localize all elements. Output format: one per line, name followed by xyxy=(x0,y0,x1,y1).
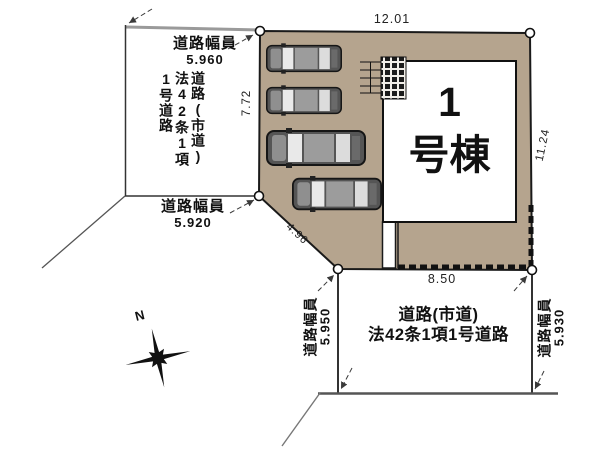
road-width-title: 道路幅員 xyxy=(135,199,251,215)
dimension-south-edge: 8.50 xyxy=(413,272,471,286)
building-1-label: 1 号棟 xyxy=(383,76,516,182)
road-width-value: 5.930 xyxy=(553,277,567,379)
car-icon xyxy=(267,85,341,115)
south-road-name-line1: 道路(市道) xyxy=(341,305,536,325)
road-width-label-south-east: 道路幅員 5.930 xyxy=(538,277,567,379)
site-plan-canvas xyxy=(0,0,600,450)
south-road-name-line2: 法42条1項1号道路 xyxy=(341,325,536,345)
dimension-north-edge: 12.01 xyxy=(360,12,424,26)
site-plan: 道路幅員 5.960 道路(市道) 法42条1項 1号道路 7.72 道路幅員 … xyxy=(0,0,600,450)
road-width-title: 道路幅員 xyxy=(147,36,263,52)
south-road-name: 道路(市道) 法42条1項1号道路 xyxy=(341,305,536,345)
road-width-label-northwest: 道路幅員 5.960 xyxy=(147,36,263,67)
road-width-label-south-west: 道路幅員 5.950 xyxy=(304,276,333,378)
car-icon xyxy=(293,176,381,212)
building-suffix: 号棟 xyxy=(383,129,516,182)
road-width-label-west: 道路幅員 5.920 xyxy=(135,199,251,230)
compass-icon xyxy=(119,322,196,394)
building-number: 1 xyxy=(383,76,516,129)
car-icon xyxy=(267,128,365,168)
road-width-title: 道路幅員 xyxy=(304,276,319,378)
road-width-value: 5.920 xyxy=(135,215,251,230)
road-width-value: 5.960 xyxy=(147,52,263,67)
west-road-name: 道路(市道) 法42条1項 1号道路 xyxy=(158,71,206,175)
road-width-value: 5.950 xyxy=(319,276,333,378)
entrance-walkway xyxy=(383,222,396,268)
road-width-title: 道路幅員 xyxy=(538,277,553,379)
dimension-west-edge: 7.72 xyxy=(241,74,253,132)
car-icon xyxy=(267,43,341,73)
